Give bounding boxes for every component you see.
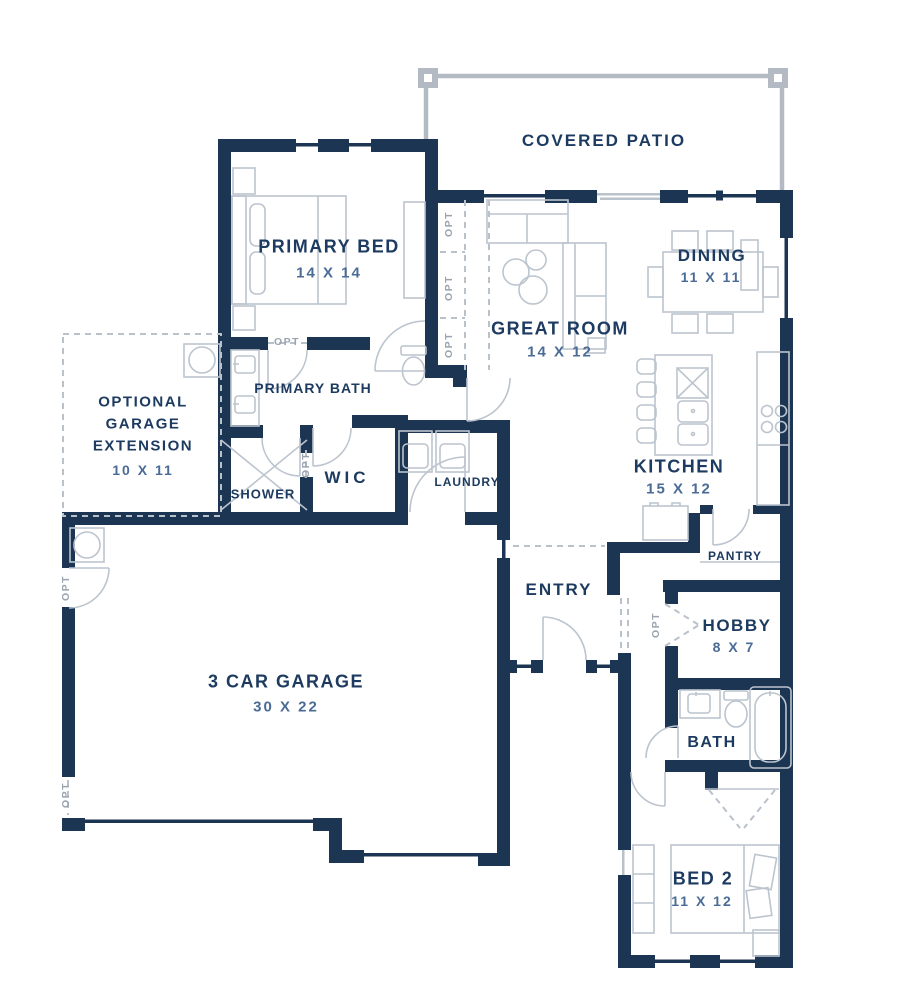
closet-bifold-icon xyxy=(744,790,775,828)
dresser-icon xyxy=(404,202,425,298)
kitchen-island-icon xyxy=(655,355,712,455)
dresser-icon xyxy=(633,845,654,933)
room-dims-garage-extension: 10 X 11 xyxy=(112,462,174,478)
bath-vanity-icon xyxy=(680,690,720,718)
room-label-entry: ENTRY xyxy=(526,580,593,600)
pantry-door-icon xyxy=(713,509,749,545)
floor-plan: COVERED PATIO PRIMARY BED 14 X 14 GREAT … xyxy=(0,0,900,993)
room-dims-great-room: 14 X 12 xyxy=(527,344,593,361)
room-label-pantry: PANTRY xyxy=(708,549,762,563)
nightstand-icon xyxy=(233,306,255,330)
kitchen-cabinet-icon xyxy=(643,503,688,540)
room-dims-hobby: 8 X 7 xyxy=(713,639,756,655)
toilet-icon xyxy=(724,691,748,727)
bar-stool-icon xyxy=(637,359,656,443)
room-label-laundry: LAUNDRY xyxy=(434,475,499,489)
hobby-french-door-icon xyxy=(665,625,699,646)
opt-label: OPT xyxy=(443,211,455,237)
room-label-covered-patio: COVERED PATIO xyxy=(522,131,686,151)
room-label-bath: BATH xyxy=(687,734,736,752)
room-label-great-room: GREAT ROOM xyxy=(491,319,629,340)
opt-label: OPT xyxy=(274,336,300,348)
shower-door-icon xyxy=(262,438,300,476)
dryer-icon xyxy=(436,431,469,472)
opt-label: OPT xyxy=(443,275,455,301)
room-dims-garage: 30 X 22 xyxy=(253,699,319,716)
garage-opt-door-icon xyxy=(69,568,109,608)
nightstand-icon xyxy=(753,930,779,956)
room-dims-bed2: 11 X 12 xyxy=(671,893,733,909)
room-label-garage: 3 CAR GARAGE xyxy=(208,672,364,693)
bath-door-icon xyxy=(646,726,678,758)
pouf-icon xyxy=(519,276,547,304)
room-label-wic: WIC xyxy=(324,468,369,488)
opt-label: OPT xyxy=(443,332,455,358)
bed2-door-icon xyxy=(631,772,665,806)
front-door-icon xyxy=(543,617,586,660)
wic-door-icon xyxy=(313,428,351,466)
room-dims-primary-bed: 14 X 14 xyxy=(296,265,362,282)
room-label-dining: DINING xyxy=(678,246,747,266)
pouf-icon xyxy=(503,259,529,285)
room-label-kitchen: KITCHEN xyxy=(634,457,725,478)
water-heater-icon xyxy=(70,528,104,562)
hobby-french-door-icon xyxy=(665,604,699,625)
sofa-icon xyxy=(487,200,568,243)
opt-label: OPT xyxy=(300,452,312,478)
hall-door-icon xyxy=(467,378,510,421)
room-label-bed2: BED 2 xyxy=(673,869,734,890)
closet-bifold-icon xyxy=(709,790,740,828)
room-label-garage-extension-line1: OPTIONAL xyxy=(98,394,188,411)
floor-plan-canvas xyxy=(0,0,900,993)
room-label-primary-bed: PRIMARY BED xyxy=(258,237,400,258)
utility-sink-icon xyxy=(184,344,220,377)
room-label-primary-bath: PRIMARY BATH xyxy=(254,380,372,396)
pouf-icon xyxy=(526,250,546,270)
room-dims-dining: 11 X 11 xyxy=(681,269,742,285)
room-label-hobby: HOBBY xyxy=(703,616,772,636)
opt-label: OPT xyxy=(650,612,662,638)
garage-door-opening xyxy=(85,820,313,824)
room-label-garage-extension-line2: GARAGE xyxy=(106,416,181,433)
opt-label: OPT xyxy=(60,782,72,808)
opt-label: OPT xyxy=(60,575,72,601)
room-label-shower: SHOWER xyxy=(231,487,296,502)
nightstand-icon xyxy=(233,168,255,194)
room-label-garage-extension-line3: EXTENSION xyxy=(93,438,193,455)
garage-door-opening xyxy=(363,853,478,857)
toilet-icon xyxy=(401,346,426,385)
room-dims-kitchen: 15 X 12 xyxy=(646,481,712,498)
